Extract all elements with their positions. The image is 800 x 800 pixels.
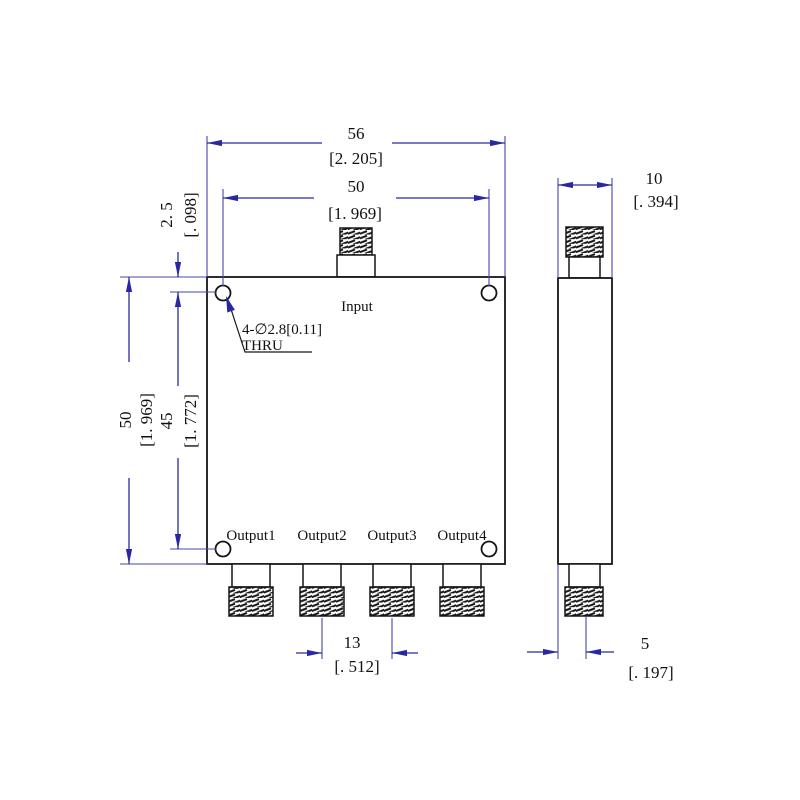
input-connector-threads xyxy=(340,228,372,255)
front-view: Input Output1 Output2 Output3 Output4 xyxy=(207,228,505,616)
output3-connector xyxy=(370,564,414,616)
output3-connector-flange xyxy=(373,564,411,587)
dim-text-mm: 50 xyxy=(348,177,365,196)
callout-text-line2: THRU xyxy=(242,338,283,354)
dim-text-mm: 45 xyxy=(157,413,176,430)
output1-port-label: Output1 xyxy=(226,528,275,544)
callout-text-line1: 4-∅2.8[0.11] xyxy=(242,322,322,338)
dim-hole-edge-offset: 2. 5 [. 098] xyxy=(157,192,200,277)
output4-connector-flange xyxy=(443,564,481,587)
dim-text-mm: 10 xyxy=(646,169,663,188)
dim-text-mm: 5 xyxy=(641,634,650,653)
output4-connector xyxy=(440,564,484,616)
dim-text-mm: 13 xyxy=(344,633,361,652)
side-input-connector-threads xyxy=(566,227,603,257)
output1-connector-flange xyxy=(232,564,270,587)
dim-text-inch: [. 197] xyxy=(628,663,673,682)
side-output-connector-threads xyxy=(565,587,603,616)
dim-text-inch: [1. 969] xyxy=(137,393,156,447)
input-port-label: Input xyxy=(341,299,373,315)
dim-text-mm: 50 xyxy=(116,412,135,429)
output1-connector-threads xyxy=(229,587,273,616)
dim-text-inch: [. 098] xyxy=(181,192,200,237)
side-body-outline xyxy=(558,278,612,564)
front-body-outline xyxy=(207,277,505,564)
dim-text-mm: 56 xyxy=(348,124,365,143)
output2-connector xyxy=(300,564,344,616)
engineering-drawing: Input Output1 Output2 Output3 Output4 56… xyxy=(0,0,800,800)
dim-text-inch: [1. 772] xyxy=(181,394,200,448)
dim-text-inch: [. 394] xyxy=(633,192,678,211)
dim-text-inch: [. 512] xyxy=(334,657,379,676)
output2-port-label: Output2 xyxy=(297,528,346,544)
side-view xyxy=(558,227,612,616)
output3-connector-threads xyxy=(370,587,414,616)
drawing-canvas: Input Output1 Output2 Output3 Output4 56… xyxy=(0,0,800,800)
dim-text-mm: 2. 5 xyxy=(157,202,176,228)
output3-port-label: Output3 xyxy=(367,528,416,544)
side-output-connector-flange xyxy=(569,564,600,587)
side-input-connector-flange xyxy=(569,257,600,278)
dim-text-inch: [1. 969] xyxy=(328,204,382,223)
output2-connector-threads xyxy=(300,587,344,616)
dim-text-inch: [2. 205] xyxy=(329,149,383,168)
output2-connector-flange xyxy=(303,564,341,587)
dim-output-pitch: 13 [. 512] xyxy=(296,618,418,676)
output4-connector-threads xyxy=(440,587,484,616)
output4-port-label: Output4 xyxy=(437,528,487,544)
output1-connector xyxy=(229,564,273,616)
input-connector-flange xyxy=(337,255,375,277)
